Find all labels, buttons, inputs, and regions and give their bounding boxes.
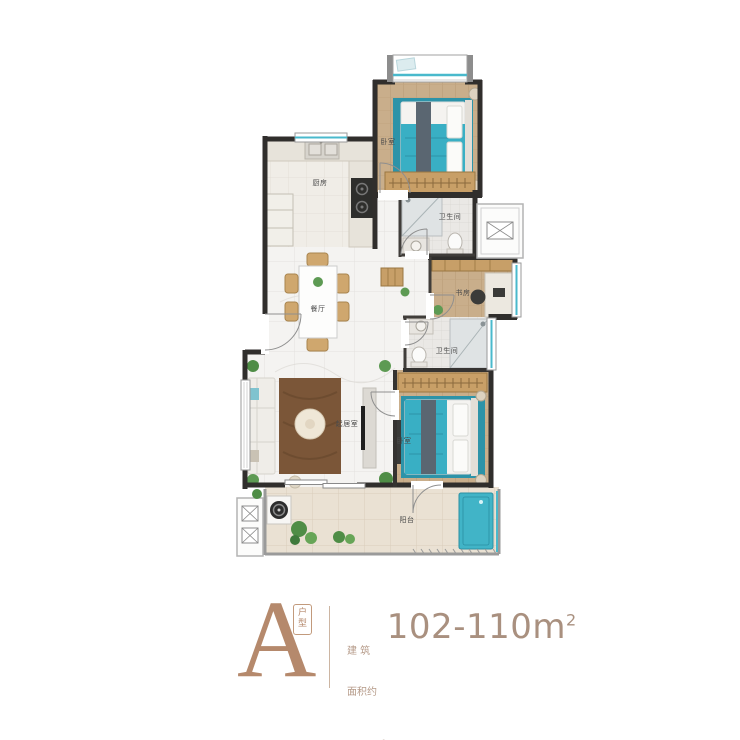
unit-type: A 户型 xyxy=(237,594,327,690)
chair xyxy=(336,274,349,293)
fridge-icon xyxy=(267,194,293,246)
layout-summary: 三室两厅两卫 xyxy=(347,732,577,740)
unit-info: A 户型 建 筑 面积约 102-110m2 三室两厅两卫 xyxy=(237,594,577,740)
area-superscript: 2 xyxy=(566,611,577,630)
shelf-icon xyxy=(432,259,513,271)
cabinet-icon xyxy=(381,268,403,286)
flyer: 卧室 厨房 餐厅 卫生间 书房 卫生间 起居室 卧室 阳台 A 户型 建 筑 面… xyxy=(0,0,740,740)
chair xyxy=(307,253,328,266)
unit-details: 建 筑 面积约 102-110m2 三室两厅两卫 xyxy=(347,594,577,740)
plant-icon xyxy=(433,305,443,315)
utility-platform-left xyxy=(237,489,263,556)
room-label-bedroom-bottom: 卧室 xyxy=(397,436,412,445)
room-bedroom-top xyxy=(385,88,481,193)
plant-icon xyxy=(345,534,355,544)
area-number: 102-110m xyxy=(387,607,566,647)
pillow xyxy=(447,106,462,138)
sliding-door xyxy=(285,480,327,485)
pillow xyxy=(453,440,468,472)
bathtub-icon xyxy=(459,493,493,549)
sliding-door xyxy=(323,484,365,489)
plant-icon xyxy=(290,535,300,545)
plant-icon xyxy=(247,360,259,372)
unit-type-letter: A xyxy=(237,594,327,684)
plant-icon xyxy=(252,489,262,499)
equipment-platform-right xyxy=(477,204,523,258)
chair xyxy=(336,302,349,321)
window-cushion xyxy=(396,58,415,71)
area-prefix-line2: 面积约 xyxy=(347,686,379,700)
room-label-study: 书房 xyxy=(456,288,471,297)
pillow xyxy=(447,142,462,174)
room-label-balcony: 阳台 xyxy=(400,515,415,524)
plant-icon xyxy=(313,277,323,287)
area-value: 102-110m2 xyxy=(387,610,577,644)
room-bedroom-bottom xyxy=(396,373,487,486)
chair xyxy=(285,274,298,293)
room-label-dining: 餐厅 xyxy=(311,304,326,313)
toilet-icon xyxy=(412,347,426,363)
window xyxy=(241,380,250,470)
plant-icon xyxy=(379,360,391,372)
plant-icon xyxy=(305,532,317,544)
desk-chair-icon xyxy=(471,290,486,305)
area-prefix-line1: 建 筑 xyxy=(347,645,379,659)
room-label-kitchen: 厨房 xyxy=(313,178,328,187)
room-label-bath-top: 卫生间 xyxy=(439,212,462,221)
nightstand xyxy=(476,391,486,401)
plant-icon xyxy=(333,531,345,543)
room-label-bedroom-top: 卧室 xyxy=(381,137,396,146)
chair xyxy=(307,338,328,351)
unit-type-badge: 户型 xyxy=(293,604,312,635)
plant-icon xyxy=(401,288,410,297)
plant-icon xyxy=(291,521,307,537)
divider xyxy=(329,606,330,688)
tv-icon xyxy=(361,406,365,450)
pillow xyxy=(453,404,468,436)
area-prefix-label: 建 筑 面积约 xyxy=(347,618,379,726)
dining-table-icon xyxy=(299,266,337,338)
room-label-living: 起居室 xyxy=(336,419,359,428)
room-label-bath-bottom: 卫生间 xyxy=(436,346,459,355)
toilet-icon xyxy=(448,233,462,251)
floor-plan: 卧室 厨房 餐厅 卫生间 书房 卫生间 起居室 卧室 阳台 xyxy=(235,52,525,570)
washbasin-icon xyxy=(411,241,421,251)
chair xyxy=(285,302,298,321)
